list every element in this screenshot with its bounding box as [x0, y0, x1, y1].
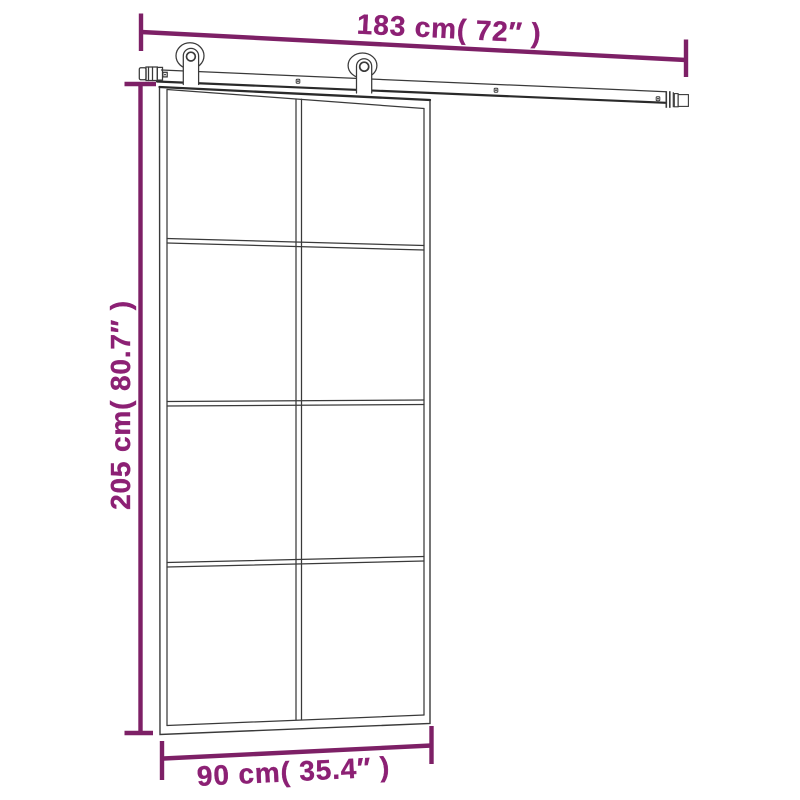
svg-text:205 cm( 80.7″ ): 205 cm( 80.7″ )	[105, 300, 136, 510]
